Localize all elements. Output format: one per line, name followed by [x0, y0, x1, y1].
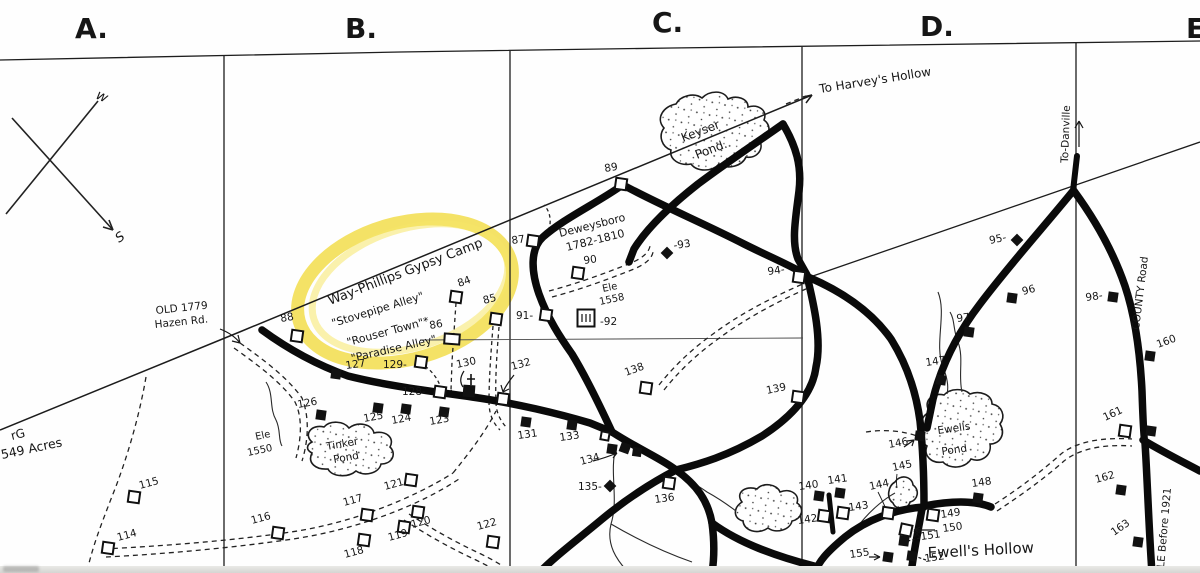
trail-138a	[659, 283, 805, 385]
marker-134: 134	[579, 431, 642, 468]
marker-label-142: 142	[797, 512, 819, 527]
marker-label-121: 121	[383, 476, 405, 493]
house-symbol-open	[663, 477, 675, 489]
marker-label-117: 117	[342, 492, 364, 509]
marker-label-129: 129-	[383, 359, 407, 371]
trail-85a	[489, 326, 500, 430]
arrow-132	[501, 375, 514, 392]
house-symbol-filled	[661, 247, 674, 260]
map-label-ele: Ele	[254, 429, 271, 443]
old-hazen-survey-line	[0, 95, 812, 430]
map-label-1550: 1550	[246, 443, 273, 459]
house-symbol-open	[837, 507, 849, 519]
map-label-1558: 1558	[598, 292, 625, 308]
marker-124: 124	[390, 403, 412, 427]
marker-label-94: 94-	[767, 264, 786, 278]
marker-label-131: 131	[517, 427, 539, 442]
marker-143: 143	[837, 499, 869, 519]
marker-119: 119	[387, 521, 411, 544]
marker-160: 160	[1144, 333, 1178, 362]
house-symbol-open	[527, 235, 539, 247]
house-symbol-open	[792, 391, 804, 403]
house-symbol-filled	[1011, 234, 1024, 247]
marker-120: 120	[410, 506, 432, 531]
house-symbol-open	[882, 507, 894, 519]
map-label-le-before-1921: LE Before 1921	[1155, 487, 1174, 568]
trail-hazen-1	[234, 348, 300, 458]
house-symbol-filled	[935, 374, 946, 385]
lot-line	[420, 338, 803, 340]
marker-161: 161	[1101, 404, 1131, 437]
marker-121: 121	[383, 474, 418, 493]
marker-label-138: 138	[623, 361, 646, 379]
map-label-to-danville: To-Danville	[1059, 105, 1073, 164]
compass-line-sw	[12, 118, 113, 230]
marker-123: 123	[428, 406, 450, 428]
house-symbol-filled	[882, 551, 893, 562]
marker-90: 90	[572, 253, 598, 279]
marker-label-130: 130	[455, 355, 477, 371]
marker-label-150: 150	[942, 520, 964, 535]
house-symbol-open	[490, 313, 502, 325]
marker-131: 131	[517, 416, 539, 442]
map-label-to-harvey-s-hollow: To Harvey's Hollow	[817, 64, 932, 96]
map-canvas: 8889848586879091--92-9394-95-969798-1141…	[0, 0, 1200, 573]
house-symbol-filled	[1144, 350, 1155, 361]
house-symbol-open	[927, 509, 939, 521]
house-symbol-open	[291, 330, 303, 342]
marker-label-134: 134	[579, 451, 602, 468]
house-symbol-open	[615, 178, 627, 190]
marker-125: 125	[362, 402, 384, 425]
map-label-549-acres: 549 Acres	[0, 434, 63, 462]
marker-label-155: 155	[849, 546, 871, 561]
marker-label-91: 91-	[516, 310, 533, 322]
marker-label-135: 135-	[578, 481, 602, 493]
marker-label-162: 162	[1094, 469, 1116, 486]
road-danville-stub	[1073, 156, 1077, 191]
marker-128: 128-	[402, 386, 446, 398]
grid-letter-d: D.	[920, 10, 954, 43]
marker-126: 126	[296, 396, 326, 421]
map-label-rg: rG	[9, 426, 26, 443]
marker-label-116: 116	[250, 510, 273, 527]
grid-letters-layer: A.B.C.D.E	[75, 6, 1200, 45]
marker-122: 122	[476, 516, 500, 548]
house-symbol-open	[405, 474, 417, 486]
house-symbol-filled	[898, 535, 909, 546]
marker-89: 89	[603, 161, 627, 190]
marker-162: 162	[1094, 469, 1127, 496]
marker-label-136: 136	[654, 491, 676, 506]
house-symbol-open	[640, 382, 652, 394]
house-symbol-open	[450, 291, 462, 303]
house-symbol-filled	[330, 368, 341, 379]
marker-155: 155	[849, 546, 894, 562]
house-symbol-filled	[315, 409, 326, 420]
marker-label-123: 123	[428, 413, 450, 428]
grid-top-border	[0, 41, 1200, 60]
house-symbol-open	[899, 523, 912, 536]
marker-91: 91-	[516, 309, 552, 322]
map-svg: 8889848586879091--92-9394-95-969798-1141…	[0, 0, 1200, 573]
stream-c2	[611, 524, 692, 562]
house-symbol-open	[793, 271, 805, 283]
house-symbol-filled	[1107, 291, 1118, 302]
house-symbol-filled	[606, 443, 617, 454]
marker-114: 114	[102, 527, 139, 554]
marker-label-118: 118	[343, 544, 365, 561]
house-symbol-filled	[463, 385, 476, 398]
marker-92: -92	[578, 310, 618, 329]
marker-label-161: 161	[1101, 404, 1124, 423]
marker-label-84: 84	[456, 274, 473, 290]
marker-145: 145	[891, 458, 913, 474]
marker-label-148: 148	[971, 475, 993, 490]
marker-93: -93	[661, 238, 692, 260]
marker-115: 115	[128, 475, 160, 503]
marker-label-125: 125	[362, 410, 384, 425]
arrow-130	[461, 371, 464, 387]
road-bottom-right	[1143, 440, 1200, 471]
marker-84: 84	[450, 274, 473, 303]
house-symbol-filled	[834, 487, 845, 498]
marker-133: 133	[559, 419, 581, 444]
bottom-smudge	[3, 566, 39, 572]
marker-96: 96	[1006, 283, 1037, 304]
marker-149: 149	[927, 506, 961, 521]
marker-label-149: 149	[940, 506, 962, 521]
marker-label-98: 98-	[1085, 290, 1104, 304]
marker-95: 95-	[988, 232, 1023, 247]
marker-label-151: 151	[920, 528, 942, 543]
marker-label-160: 160	[1155, 333, 1178, 351]
house-symbol-filled	[972, 492, 983, 503]
marker-label-97: 97	[956, 311, 971, 325]
map-label-ewell-s-hollow: Ewell's Hollow	[927, 538, 1034, 562]
road-keyser-south	[783, 124, 807, 275]
marker-label-114: 114	[116, 527, 139, 544]
connector-145	[897, 474, 898, 488]
house-symbol-open	[818, 510, 830, 522]
house-symbol-open	[102, 542, 114, 554]
house-symbol-open	[540, 309, 552, 321]
house-symbol-open	[434, 386, 446, 398]
marker-label-144: 144	[868, 477, 890, 493]
bottom-pond	[735, 485, 801, 532]
marker-label-119: 119	[387, 527, 409, 544]
marker-163: 163	[1109, 517, 1144, 548]
marker-label-90: 90	[583, 253, 598, 267]
marker-label-124: 124	[390, 412, 412, 427]
marker-label-163: 163	[1109, 517, 1132, 538]
bottom-ui-strip	[0, 566, 1200, 573]
marker-135: 135-	[578, 480, 616, 493]
house-symbol-open	[1119, 425, 1131, 437]
house-symbol-open	[497, 393, 509, 405]
marker-label-95: 95-	[988, 232, 1007, 247]
arrow-155	[869, 554, 880, 560]
marker-87: 87	[511, 233, 539, 247]
marker-label-92: -92	[600, 316, 617, 328]
house-symbol-filled	[914, 430, 925, 441]
house-symbol-open	[361, 509, 373, 521]
marker-129: 129-	[383, 356, 427, 371]
map-label-county-road: COUNTY Road	[1130, 256, 1151, 331]
house-symbol-filled	[520, 416, 531, 427]
marker-label-87: 87	[511, 233, 526, 247]
tinker-pond	[308, 422, 394, 475]
marker-label-128: 128-	[402, 386, 426, 398]
house-symbol-filled	[906, 550, 917, 561]
house-symbol-open	[600, 431, 609, 440]
house-symbol-filled	[1145, 425, 1156, 436]
marker-label-96: 96	[1021, 283, 1037, 298]
marker-label-86: 86	[428, 318, 444, 332]
house-symbol-filled	[632, 447, 642, 457]
grid-letter-a: A.	[75, 12, 108, 45]
highlight-circle	[281, 195, 530, 386]
marker-148: 148	[971, 475, 993, 503]
marker-label-126: 126	[296, 396, 318, 411]
marker-label-139: 139	[765, 381, 787, 397]
house-symbol-filled	[1132, 536, 1143, 547]
marker-label-89: 89	[603, 161, 618, 175]
house-symbol-filled	[813, 490, 824, 501]
house-symbol-open	[572, 267, 584, 279]
marker-132: 132	[497, 356, 532, 405]
house-symbol-open	[272, 527, 284, 539]
marker-label-133: 133	[559, 429, 581, 444]
marker-label-145: 145	[891, 458, 913, 474]
trail-b-up	[453, 411, 496, 473]
road-county	[1074, 191, 1152, 573]
trail-146	[866, 431, 917, 436]
survey-lines	[0, 95, 1200, 430]
compass	[6, 101, 113, 230]
marker-unlabeled-56	[1145, 425, 1156, 436]
marker-label-115: 115	[138, 475, 160, 492]
marker-label-141: 141	[827, 472, 849, 487]
marker-label-93: -93	[673, 238, 692, 252]
grid-letter-e: E	[1186, 12, 1200, 45]
house-symbol-filled	[1006, 292, 1017, 303]
marker-118: 118	[343, 534, 371, 561]
markers-layer: 8889848586879091--92-9394-95-969798-1141…	[102, 161, 1178, 565]
marker-label-122: 122	[476, 516, 498, 533]
house-symbol-open	[128, 491, 140, 503]
grid-letter-b: B.	[345, 12, 377, 45]
house-symbol-open	[487, 536, 499, 548]
cross-icon	[467, 374, 475, 385]
marker-130: 130	[455, 355, 477, 397]
marker-label-88: 88	[279, 311, 294, 325]
marker-138: 138	[623, 361, 652, 395]
house-symbol-open	[444, 333, 460, 344]
marker-label-132: 132	[510, 356, 532, 373]
house-symbol-open	[415, 356, 427, 368]
trail-85b	[496, 327, 506, 427]
grid-letter-c: C.	[652, 6, 683, 39]
marker-139: 139	[765, 381, 804, 403]
small-swamp	[889, 477, 918, 509]
marker-98: 98-	[1085, 290, 1119, 304]
house-symbol-filled	[1115, 484, 1126, 495]
house-symbol-filled	[963, 326, 974, 337]
marker-label-146: 146	[887, 436, 909, 451]
trail-a	[87, 377, 146, 572]
trail-junction-dash	[786, 96, 806, 104]
marker-label-143: 143	[848, 499, 870, 514]
map-label-s: S	[113, 229, 128, 246]
